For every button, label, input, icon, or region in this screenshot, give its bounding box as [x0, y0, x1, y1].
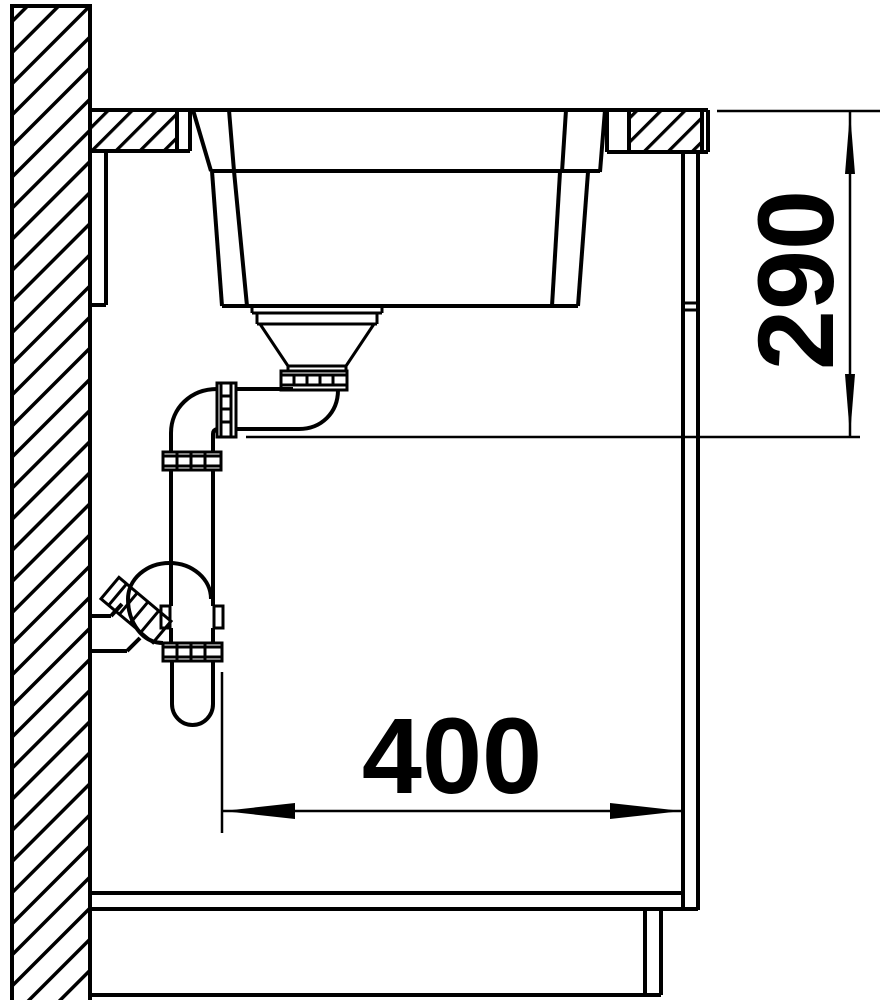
arrowhead-right [610, 803, 682, 819]
cabinet-side-panel-joint [683, 303, 698, 310]
elbow-outer-curve [171, 389, 217, 452]
countertop-cutout-left-edge [177, 110, 190, 151]
siphon-trap [90, 563, 223, 725]
cabinet-bottom-panel [90, 893, 698, 909]
strainer-drain [252, 306, 382, 390]
bowl-right-wall-outer-upper [600, 110, 605, 172]
wall-section [12, 6, 90, 1000]
strainer-body-taper [260, 324, 374, 366]
trap-tab-right [214, 606, 223, 628]
tailpipe-elbow [163, 383, 338, 643]
countertop-section [90, 110, 708, 152]
arrowhead-left [223, 803, 295, 819]
bowl-right-wall-outer-lower [578, 172, 588, 306]
arrowhead-down [845, 374, 855, 436]
strainer-flange-lower [257, 313, 377, 324]
trap-nut [163, 643, 222, 661]
bowl-right-wall-inner-upper [562, 110, 566, 172]
countertop-front-edge [702, 110, 708, 152]
countertop-hatching-left [90, 110, 177, 151]
vertical-pipe-nut [163, 452, 221, 470]
elbow-nut [217, 383, 236, 437]
technical-drawing: 290 400 [0, 0, 891, 1000]
cabinet [90, 151, 698, 995]
wall-hatching [12, 6, 90, 1000]
bowl-left-wall-inner-lower [234, 171, 247, 306]
countertop-cutout-right-edge [607, 110, 629, 152]
bowl-left-wall-inner-upper [229, 110, 234, 171]
cabinet-back-rail [90, 151, 106, 305]
vertical-pipe [171, 470, 213, 643]
dim-label-400: 400 [362, 695, 542, 816]
bowl-right-wall-inner-lower [552, 172, 560, 306]
trap-u-bottom [172, 704, 213, 725]
dimension-400: 400 [222, 672, 683, 833]
dim-label-290: 290 [735, 190, 856, 370]
countertop-hatching-right [629, 110, 702, 152]
cabinet-side-panel [683, 152, 698, 910]
sink-section-svg: 290 400 [0, 0, 891, 1000]
trap-u-legs [172, 661, 213, 704]
cabinet-plinth [90, 909, 661, 995]
sink-bowl [193, 110, 605, 306]
bowl-left-wall-outer-upper [193, 110, 211, 171]
arrowhead-up [845, 112, 855, 174]
bowl-left-wall-outer-lower [212, 171, 222, 306]
wall-outlet-stub [90, 616, 127, 651]
tailpipe-bend-outer [299, 390, 338, 429]
